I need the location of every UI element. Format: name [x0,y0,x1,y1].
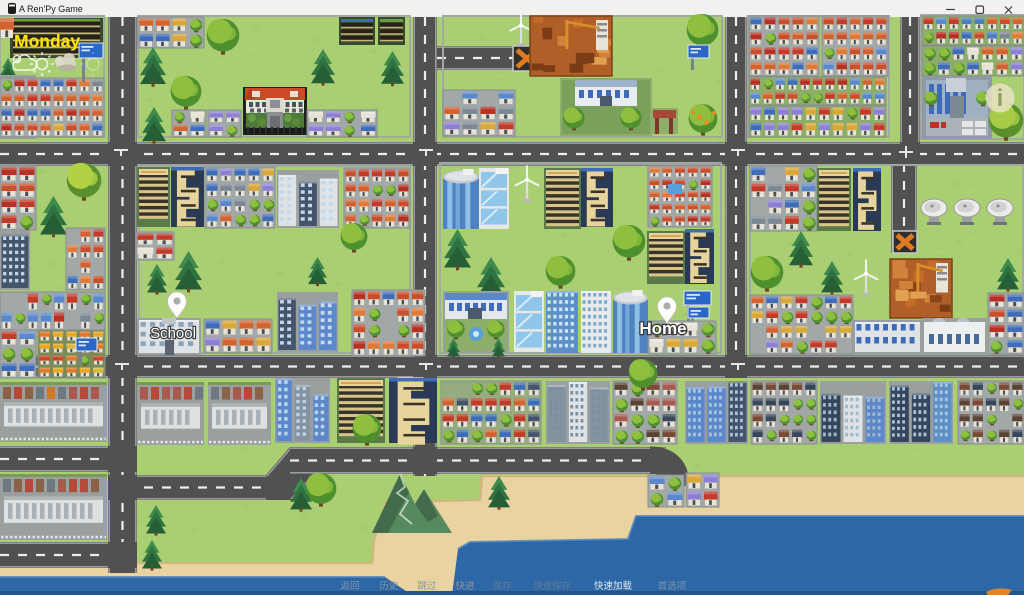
svg-text:返回: 返回 [340,580,359,592]
svg-text:School: School [150,325,196,342]
svg-text:保存: 保存 [492,580,512,592]
svg-text:快速加载: 快速加载 [594,580,633,592]
svg-text:快速保存: 快速保存 [533,580,572,592]
svg-text:i: i [997,85,1004,112]
svg-text:Home: Home [639,319,686,338]
svg-text:快进: 快进 [455,580,475,592]
svg-text:Monday: Monday [14,31,80,51]
svg-text:首选项: 首选项 [658,580,687,592]
svg-text:历史: 历史 [379,580,399,592]
svg-text:跳过: 跳过 [417,580,437,592]
